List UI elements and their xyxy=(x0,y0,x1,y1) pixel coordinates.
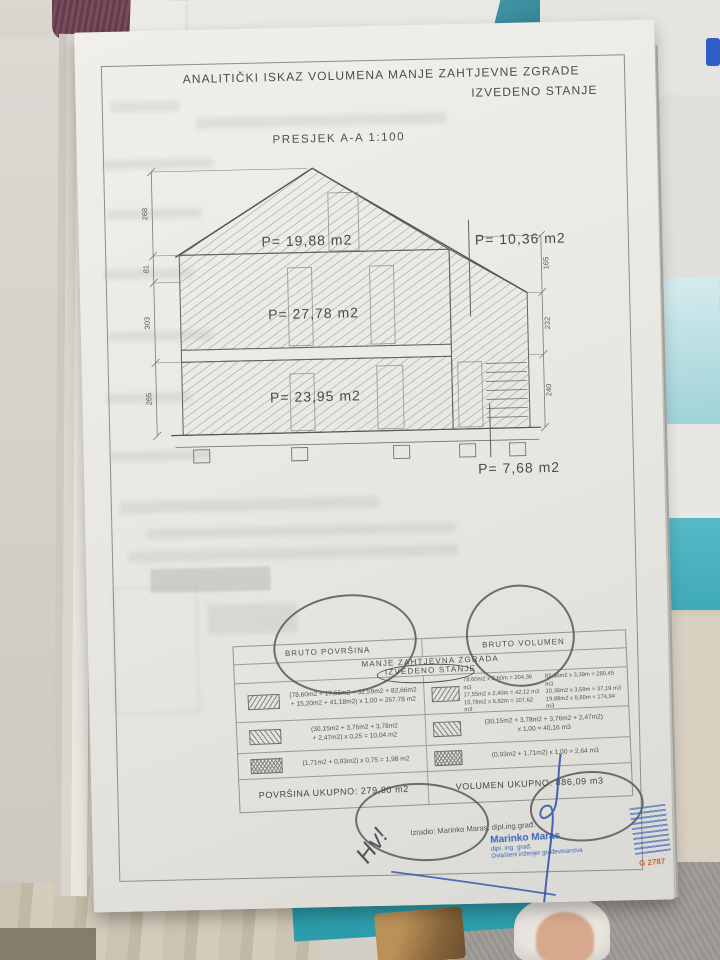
signature-stroke xyxy=(74,20,674,913)
shelf-edge xyxy=(660,95,720,295)
wooden-object xyxy=(374,906,466,960)
document-sheet: ANALITIČKI ISKAZ VOLUMENA MANJE ZAHTJEVN… xyxy=(74,20,674,913)
photo-of-document-scene: DUX INE ANALITIČKI ISKAZ VOLU xyxy=(0,0,720,960)
table-edge xyxy=(0,38,60,883)
blue-clip xyxy=(706,38,720,66)
curtain-shadow xyxy=(0,928,96,960)
toes xyxy=(536,912,594,960)
